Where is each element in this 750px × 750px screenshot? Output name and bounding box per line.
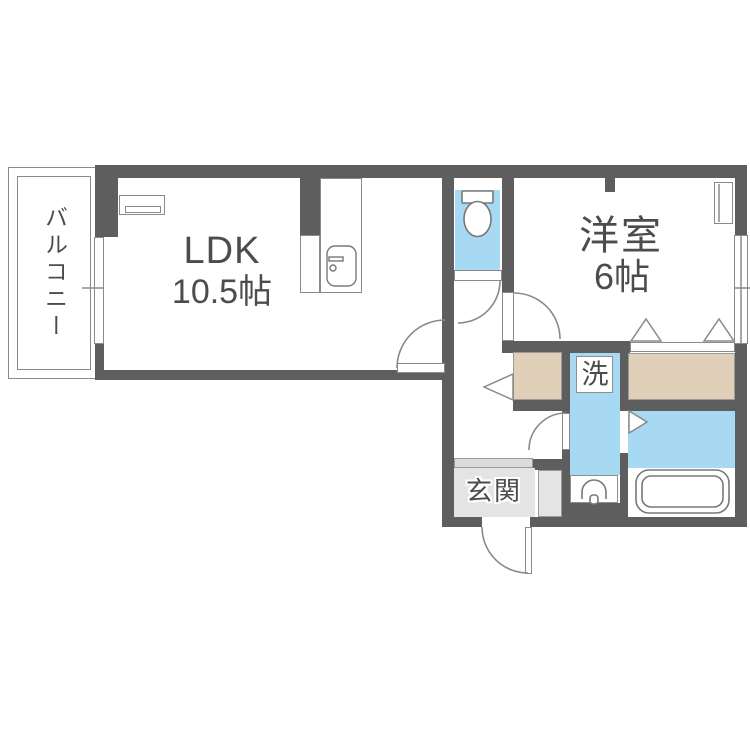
air-conditioner-vent	[125, 206, 161, 213]
western-room-door-leaf	[502, 292, 514, 341]
toilet-door-leaf	[454, 270, 502, 281]
wall-right-upper	[735, 178, 747, 235]
room-bathroom	[628, 411, 735, 468]
ldk-size-label: 10.5帖	[172, 275, 272, 309]
bathtub-inner	[642, 476, 723, 507]
western-room-side-window	[734, 235, 748, 344]
floor-plan: バルコニー LDK 10.5帖 洋室 6帖 玄関 洗	[0, 0, 750, 750]
wall-top	[95, 165, 747, 178]
wall-right-lower	[735, 344, 747, 527]
entrance-door-arc	[482, 527, 528, 573]
wall-below-closet	[620, 400, 747, 411]
hall-closet-fold-triangle	[484, 374, 513, 400]
washroom-door-arc	[529, 413, 566, 450]
laundry-label: 洗	[582, 362, 609, 389]
wall-below-hall-closet	[513, 400, 570, 411]
bathtub-outer	[636, 470, 729, 513]
western-room-closet	[628, 353, 735, 400]
balcony-label: バルコニー	[43, 206, 66, 341]
entrance-step	[454, 458, 533, 468]
ldk-door-arc	[397, 320, 445, 368]
wall-toilet-right	[502, 178, 514, 292]
kitchen-counter-side	[300, 235, 320, 293]
ldk-door-leaf	[397, 363, 445, 373]
closet-bifold-triangle-right	[704, 319, 734, 341]
wall-entrance-step-chunk	[533, 459, 570, 470]
balcony-window	[94, 237, 104, 344]
closet-bifold-track	[630, 342, 735, 352]
kitchen-counter	[320, 178, 362, 293]
wall-bottom-right	[530, 517, 747, 527]
toilet-door-arc	[458, 281, 500, 323]
entrance-label: 玄関	[466, 478, 522, 504]
wall-bottom-left	[442, 517, 482, 527]
wall-center-vertical	[442, 178, 454, 527]
wall-kitchen-stub	[300, 178, 320, 235]
closet-bifold-triangle-left	[631, 319, 661, 341]
wall-pillar-western-room	[605, 178, 615, 192]
western-room-label: 洋室	[579, 216, 663, 256]
ldk-label: LDK	[184, 232, 261, 270]
western-room-door-arc	[514, 293, 560, 339]
entrance-door-leaf	[525, 527, 532, 574]
western-room-small-window	[714, 182, 733, 224]
washbasin-box	[570, 475, 618, 503]
hall-closet	[513, 352, 562, 400]
wall-ldk-bottom	[95, 370, 445, 380]
shoe-cabinet	[538, 470, 562, 517]
wall-under-washbasin	[562, 503, 628, 517]
washroom-door-leaf	[562, 413, 570, 450]
bathtub-icon	[636, 470, 729, 513]
wall-pillar-top-left	[95, 178, 118, 237]
room-toilet	[455, 190, 500, 270]
western-room-size-label: 6帖	[594, 259, 650, 295]
door-swing-symbol	[397, 281, 566, 573]
